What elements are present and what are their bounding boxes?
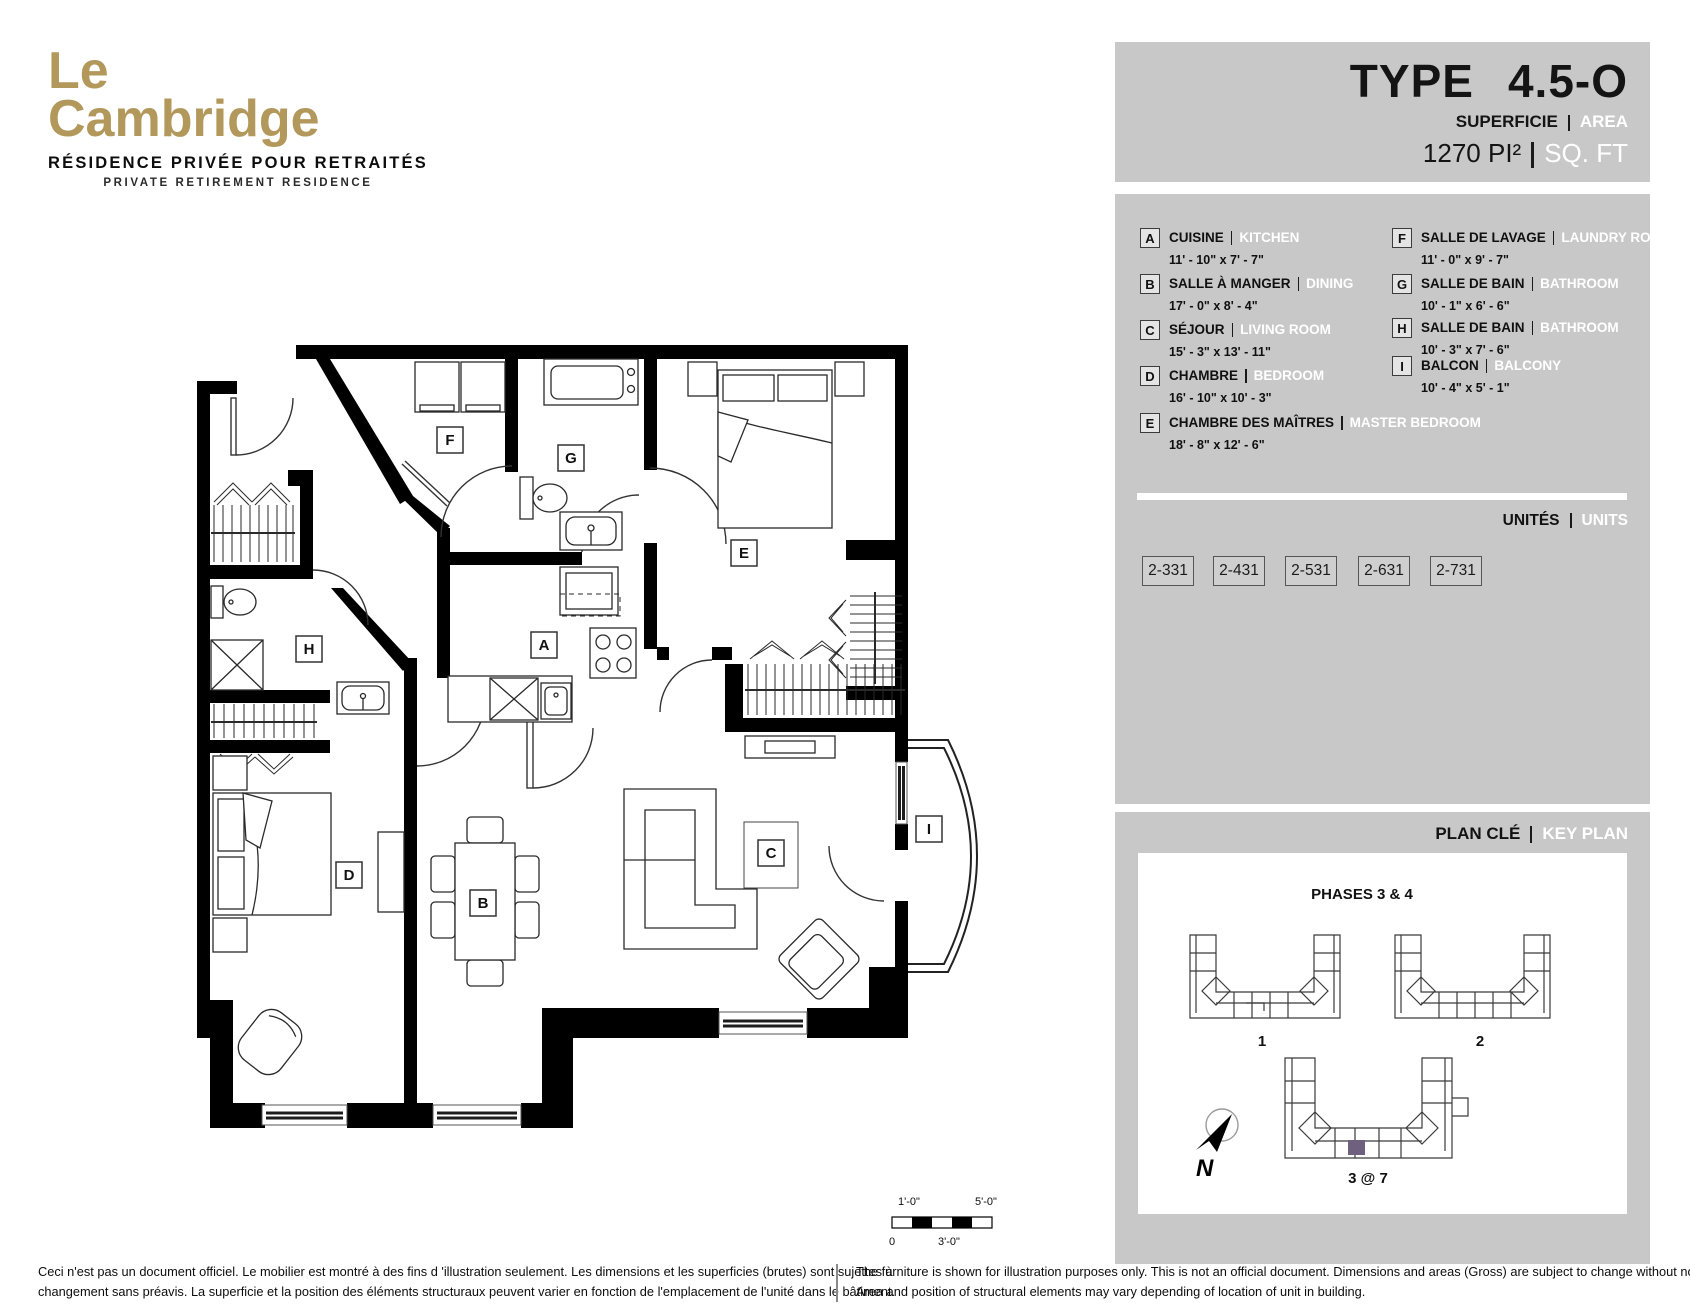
room-label-e: E: [739, 545, 749, 562]
logo-line1: Le: [48, 48, 428, 96]
legend-name-fr: SALLE DE BAIN: [1421, 320, 1525, 335]
legend-name-fr: SALLE DE LAVAGE: [1421, 230, 1546, 245]
legend-name-fr: SÉJOUR: [1169, 322, 1225, 337]
legend-name-fr: CHAMBRE: [1169, 368, 1238, 383]
keyplan-phases-label: PHASES 3 & 4: [1311, 886, 1413, 903]
units-title: UNITÉSUNITS: [1503, 512, 1628, 530]
bathroom-sink-h: [337, 682, 389, 714]
toilet-h: [211, 586, 256, 618]
bathroom-sink: [560, 512, 622, 550]
type-value: 4.5-O: [1508, 55, 1628, 107]
legend-letter-f: F: [1392, 228, 1412, 248]
legend-name-en: LIVING ROOM: [1240, 322, 1331, 337]
legend-name-en: BALCONY: [1494, 358, 1561, 373]
shower: [211, 640, 263, 690]
legend-dims: 10' - 4" x 5' - 1": [1421, 381, 1510, 395]
bedroom-bed: [213, 756, 331, 952]
unit-badge-2-331: 2-331: [1142, 556, 1194, 586]
keyplan-map: PHASES 3 & 4 1 2: [1138, 853, 1627, 1214]
type-header-panel: TYPE4.5-O SUPERFICIEAREA 1270 PI²SQ. FT: [1115, 42, 1650, 182]
scale-label-3ft: 3'-0": [938, 1236, 960, 1248]
legend-letter-b: B: [1140, 274, 1160, 294]
sofa: [624, 789, 757, 949]
legend-dims: 10' - 1" x 6' - 6": [1421, 299, 1510, 313]
legend-letter-i: I: [1392, 356, 1412, 376]
legend-letter-d: D: [1140, 366, 1160, 386]
legend-dims: 10' - 3" x 7' - 6": [1421, 343, 1510, 357]
legend-name-fr: CUISINE: [1169, 230, 1224, 245]
unit-badge-2-531: 2-531: [1285, 556, 1337, 586]
legend-panel: A CUISINEKITCHEN 11' - 10" x 7' - 7" B S…: [1115, 194, 1650, 804]
keyplan-panel: PLAN CLÉKEY PLAN PHASES 3 & 4 1: [1115, 812, 1650, 1264]
scale-bar-graphic: [885, 1212, 1005, 1234]
area-subtitle: SUPERFICIEAREA: [1456, 112, 1628, 132]
legend-dims: 11' - 10" x 7' - 7": [1169, 253, 1264, 267]
footer-disclaimer-fr: Ceci n'est pas un document officiel. Le …: [38, 1262, 828, 1302]
armchair: [777, 917, 862, 1002]
dresser: [378, 832, 404, 912]
unit-badge-2-431: 2-431: [1213, 556, 1265, 586]
units-title-fr: UNITÉS: [1503, 512, 1560, 529]
type-label: TYPE: [1350, 55, 1474, 107]
keyplan-building-3-label: 3 @ 7: [1348, 1170, 1388, 1187]
footer-divider: [836, 1264, 838, 1302]
footer-en-line1: The furniture is shown for illustration …: [856, 1262, 1676, 1282]
legend-dims: 15' - 3" x 13' - 11": [1169, 345, 1271, 359]
keyplan-title-fr: PLAN CLÉ: [1435, 824, 1520, 843]
legend-name-fr: BALCON: [1421, 358, 1479, 373]
scale-label-5ft: 5'-0": [975, 1196, 997, 1208]
room-label-a: A: [539, 637, 550, 654]
legend-name-fr: SALLE À MANGER: [1169, 276, 1291, 291]
type-title: TYPE4.5-O: [1350, 54, 1628, 108]
footer-en-line2: Area and position of structural elements…: [856, 1282, 1676, 1302]
balcony-outline: [908, 740, 977, 972]
scale-label-0: 0: [889, 1236, 895, 1248]
legend-dims: 11' - 0" x 9' - 7": [1421, 253, 1509, 267]
logo-line2: Cambridge: [48, 96, 428, 144]
legend-name-en: BATHROOM: [1540, 276, 1619, 291]
legend-name-fr: SALLE DE BAIN: [1421, 276, 1525, 291]
brand-logo: Le Cambridge RÉSIDENCE PRIVÉE POUR RETRA…: [48, 48, 428, 189]
legend-dims: 16' - 10" x 10' - 3": [1169, 391, 1272, 405]
bathtub: [544, 359, 638, 405]
keyplan-building-1: [1190, 935, 1340, 1018]
legend-name-en: BEDROOM: [1254, 368, 1325, 383]
unit-badge-2-631: 2-631: [1358, 556, 1410, 586]
legend-name-en: DINING: [1306, 276, 1353, 291]
legend-letter-h: H: [1392, 318, 1412, 338]
corner-chair: [232, 1003, 308, 1081]
legend-letter-c: C: [1140, 320, 1160, 340]
units-title-en: UNITS: [1582, 512, 1629, 529]
floorplan-drawing: F G E H A D B C I: [85, 255, 1015, 1195]
legend-name-en: BATHROOM: [1540, 320, 1619, 335]
area-value: 1270 PI²SQ. FT: [1423, 138, 1628, 169]
area-value-fr: 1270 PI²: [1423, 138, 1521, 168]
keyplan-drawing: PHASES 3 & 4 1 2: [1138, 853, 1627, 1214]
keyplan-title-en: KEY PLAN: [1542, 824, 1628, 843]
footer-fr-line1: Ceci n'est pas un document officiel. Le …: [38, 1262, 828, 1282]
unit-badge-2-731: 2-731: [1430, 556, 1482, 586]
legend-letter-a: A: [1140, 228, 1160, 248]
room-label-f: F: [445, 432, 454, 449]
logo-subtitle-en: PRIVATE RETIREMENT RESIDENCE: [48, 177, 428, 189]
keyplan-title: PLAN CLÉKEY PLAN: [1435, 824, 1628, 844]
area-value-en: SQ. FT: [1544, 138, 1628, 168]
logo-subtitle-fr: RÉSIDENCE PRIVÉE POUR RETRAITÉS: [48, 154, 428, 173]
footer-disclaimer-en: The furniture is shown for illustration …: [856, 1262, 1676, 1302]
room-label-d: D: [344, 867, 355, 884]
legend-name-fr: CHAMBRE DES MAÎTRES: [1169, 415, 1334, 430]
legend-dims: 17' - 0" x 8' - 4": [1169, 299, 1258, 313]
scale-label-1ft: 1'-0": [898, 1196, 920, 1208]
north-label: N: [1196, 1155, 1214, 1182]
room-label-c: C: [766, 845, 777, 862]
units-divider: [1137, 493, 1627, 500]
area-label-en: AREA: [1580, 112, 1628, 131]
area-label-fr: SUPERFICIE: [1456, 112, 1558, 131]
north-arrow-icon: N: [1196, 1109, 1238, 1182]
room-label-h: H: [304, 641, 315, 658]
legend-name-en: LAUNDRY ROOM: [1561, 230, 1672, 245]
room-label-i: I: [927, 821, 931, 838]
legend-name-en: KITCHEN: [1239, 230, 1299, 245]
keyplan-highlighted-unit: [1348, 1140, 1365, 1155]
legend-name-en: MASTER BEDROOM: [1350, 415, 1481, 430]
units-row: 2-331 2-431 2-531 2-631 2-731: [1115, 556, 1650, 586]
legend-letter-e: E: [1140, 413, 1160, 433]
keyplan-building-3: [1285, 1058, 1468, 1158]
keyplan-building-1-label: 1: [1258, 1033, 1266, 1050]
keyplan-building-2-label: 2: [1476, 1033, 1484, 1050]
tv-stand: [745, 736, 835, 758]
footer-fr-line2: changement sans préavis. La superficie e…: [38, 1282, 828, 1302]
washer-dryer: [415, 362, 505, 412]
legend-letter-g: G: [1392, 274, 1412, 294]
keyplan-building-2: [1395, 935, 1550, 1018]
floorplan-sheet: Le Cambridge RÉSIDENCE PRIVÉE POUR RETRA…: [0, 0, 1690, 1306]
legend-dims: 18' - 8" x 12' - 6": [1169, 438, 1265, 452]
room-label-b: B: [478, 895, 489, 912]
room-label-g: G: [565, 450, 577, 467]
